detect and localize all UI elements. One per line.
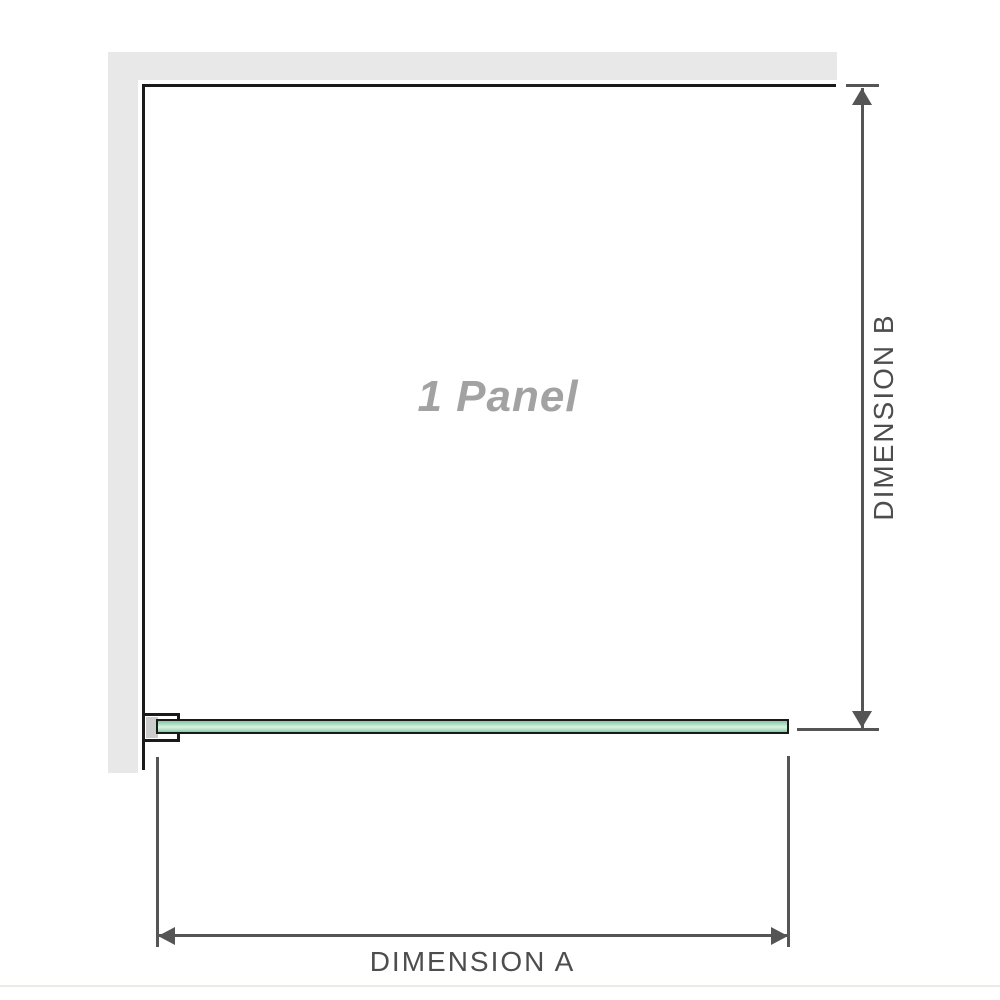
dimension-a-line [157,934,789,937]
arrow-up-icon [852,88,872,105]
dimension-a-left-extension-line [156,757,159,947]
panel-count-label: 1 Panel [298,365,698,429]
arrow-left-icon [158,927,175,945]
dimension-a-label: DIMENSION A [156,945,789,979]
dimension-b-label: DIMENSION B [868,237,900,597]
dimension-b-top-tick [846,84,879,87]
panel-outline-top-edge [142,84,836,87]
dimension-a-right-extension-line [787,756,790,947]
arrow-right-icon [771,927,788,945]
dimension-b-bottom-tick [797,728,879,731]
shower-panel-diagram: 1 Panel DIMENSION B DIMENSION A [0,0,1000,1000]
panel-outline-left-edge [142,84,145,770]
glass-panel [156,719,789,734]
arrow-down-icon [852,711,872,728]
wall-left [108,52,138,773]
wall-top [108,52,837,80]
artwork-baseline [0,985,1000,987]
dimension-b-line [861,88,864,730]
